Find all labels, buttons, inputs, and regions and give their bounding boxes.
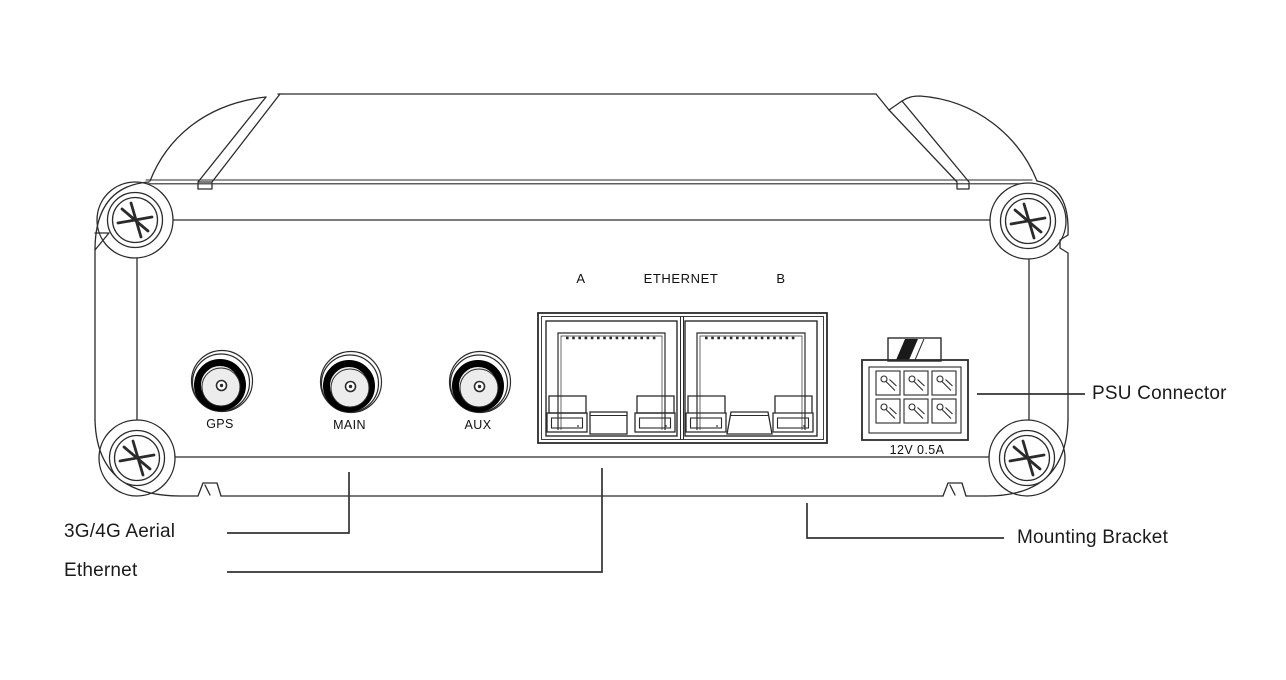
coax-connectors <box>192 351 511 413</box>
callout-ethernet: Ethernet <box>64 560 137 582</box>
bracket-tab-right <box>943 483 966 496</box>
callout-aerial: 3G/4G Aerial <box>64 521 175 543</box>
ethernet-port-b <box>685 321 817 436</box>
top-ridge-right <box>876 94 969 189</box>
gps-label: GPS <box>195 417 245 431</box>
leader-bracket <box>807 503 1004 538</box>
bracket-tab-left <box>198 483 221 496</box>
port-a-label: A <box>566 272 596 286</box>
port-a-latch-left <box>547 396 587 432</box>
port-b-label: B <box>766 272 796 286</box>
psu-rating-label: 12V 0.5A <box>878 443 956 457</box>
port-b-latch-right <box>773 396 813 432</box>
callout-bracket: Mounting Bracket <box>1017 527 1168 549</box>
leader-aerial <box>227 472 349 533</box>
ethernet-panel-label: ETHERNET <box>631 272 731 286</box>
ethernet-ports <box>538 313 827 443</box>
router-rear-panel-diagram: A ETHERNET B GPS MAIN AUX 12V 0.5A 3G/4G… <box>0 0 1286 680</box>
callout-psu: PSU Connector <box>1092 383 1227 405</box>
device-line-art <box>0 0 1286 680</box>
top-ridge-left <box>198 94 280 189</box>
screw-bottom-right-icon <box>1000 431 1055 486</box>
main-connector <box>321 352 382 413</box>
ethernet-port-a <box>546 321 677 436</box>
port-b-latch-left <box>686 396 726 432</box>
screw-bottom-left-icon <box>110 431 165 486</box>
main-label: MAIN <box>322 418 377 432</box>
leader-ethernet <box>227 468 602 572</box>
screw-top-right-icon <box>1001 194 1056 249</box>
screw-top-left-icon <box>108 193 163 248</box>
psu-connector-body <box>862 338 968 440</box>
aux-connector <box>450 352 511 413</box>
gps-connector <box>192 351 253 412</box>
port-a-latch-right <box>635 396 675 432</box>
aux-label: AUX <box>453 418 503 432</box>
front-top-edge <box>146 180 1032 184</box>
psu-pins <box>876 371 956 423</box>
top-face <box>150 94 1037 189</box>
